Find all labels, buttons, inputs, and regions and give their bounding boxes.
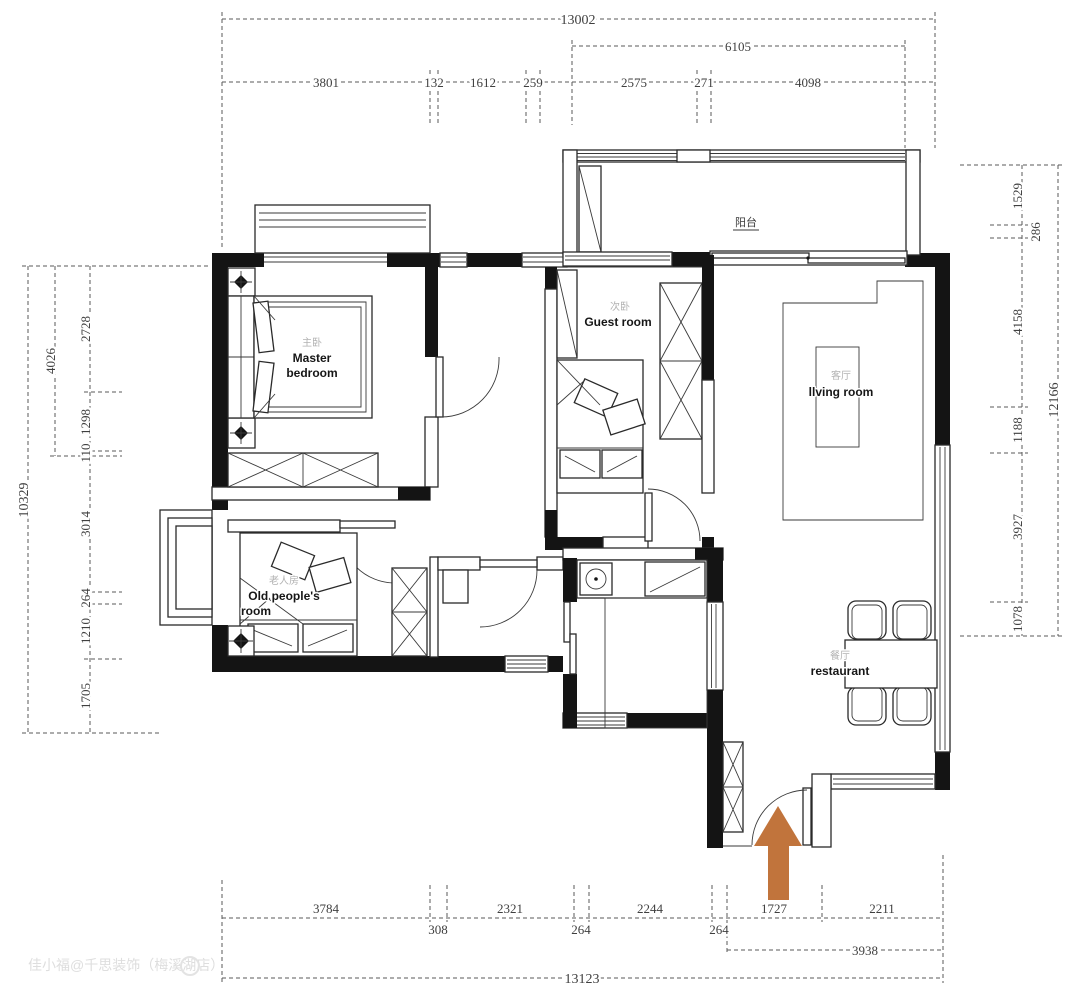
dim-bottom-seg: 264 bbox=[571, 922, 591, 937]
nightstand-icon bbox=[228, 418, 255, 448]
hall-cabinet bbox=[392, 568, 427, 656]
dim-right-seg: 1188 bbox=[1010, 417, 1025, 443]
bathroom bbox=[430, 557, 563, 657]
restaurant: 餐厅 restaurant bbox=[811, 601, 937, 725]
living-room-label-en: llving room bbox=[809, 385, 874, 399]
dim-bottom-seg: 2211 bbox=[869, 901, 895, 916]
drying-panel-icon bbox=[579, 166, 601, 252]
window-entrance bbox=[831, 774, 935, 789]
wardrobe-master bbox=[228, 453, 378, 487]
dim-bottom-overall: 13123 bbox=[565, 972, 600, 987]
master-bedroom-label-zh: 主卧 bbox=[302, 336, 322, 349]
kitchen-counter bbox=[577, 560, 707, 728]
window-restaurant bbox=[935, 445, 950, 752]
dim-right-seg: 4158 bbox=[1010, 309, 1025, 335]
dim-right-overall: 12166 bbox=[1047, 383, 1062, 418]
dim-left-sub: 4026 bbox=[43, 348, 58, 375]
dim-left-overall: 10329 bbox=[17, 483, 32, 518]
shower-partition bbox=[443, 570, 468, 603]
guest-room-label-en: Guest room bbox=[584, 315, 651, 329]
dim-top-seg: 1612 bbox=[470, 75, 496, 90]
dim-bottom-seg: 2244 bbox=[637, 901, 664, 916]
floor-plan-drawing: 13002 6105 3801 132 1612 259 2575 271 40… bbox=[0, 0, 1080, 998]
entrance bbox=[723, 742, 831, 900]
dim-top-seg: 3801 bbox=[313, 75, 339, 90]
dim-bottom-seg: 2321 bbox=[497, 901, 523, 916]
balcony-label: 阳台 bbox=[733, 215, 759, 230]
bed-guest bbox=[557, 360, 645, 493]
dim-bottom-seg: 264 bbox=[709, 922, 729, 937]
door-bathroom bbox=[480, 560, 537, 627]
door-guest-room bbox=[645, 489, 700, 541]
sliding-door-kitchen bbox=[564, 602, 576, 674]
sofa-tv-arrangement bbox=[783, 281, 923, 520]
old-people-room-label-en: room bbox=[241, 604, 271, 618]
kitchen bbox=[563, 548, 723, 728]
dim-right-seg: 286 bbox=[1028, 222, 1043, 242]
dim-top-seg: 271 bbox=[694, 75, 714, 90]
entrance-arrow-icon bbox=[754, 806, 802, 900]
dim-top-seg: 2575 bbox=[621, 75, 647, 90]
dim-left-seg: 3014 bbox=[78, 511, 93, 538]
window-bathroom bbox=[505, 656, 548, 672]
bay-window-old-room bbox=[160, 510, 212, 625]
nightstand-icon bbox=[228, 626, 254, 656]
dim-bottom-seg: 1727 bbox=[761, 901, 788, 916]
floor-plan-page: 13002 6105 3801 132 1612 259 2575 271 40… bbox=[0, 0, 1080, 998]
master-bedroom-label-en: bedroom bbox=[286, 366, 337, 380]
dimension-chain-left: 10329 4026 2728 1298 110 3014 264 1210 1… bbox=[17, 266, 208, 733]
watermark: 佳小福@千思装饰（梅溪湖店） bbox=[28, 957, 224, 975]
dimension-chain-right: 1529 286 4158 1188 3927 1078 12166 bbox=[960, 165, 1064, 636]
dimension-chain-bottom: 3784 308 2321 264 2244 264 1727 2211 393… bbox=[222, 855, 943, 987]
dim-top-seg: 132 bbox=[424, 75, 444, 90]
sliding-door-balcony bbox=[710, 251, 907, 265]
dim-bottom-seg: 308 bbox=[428, 922, 448, 937]
dim-left-seg: 2728 bbox=[78, 316, 93, 342]
balcony: 阳台 bbox=[563, 150, 920, 266]
dim-bottom-seg: 3784 bbox=[313, 901, 340, 916]
dining-set bbox=[845, 601, 937, 725]
guest-room-label-zh: 次卧 bbox=[610, 300, 630, 313]
restaurant-label-en: restaurant bbox=[811, 664, 870, 678]
dim-top-sub: 6105 bbox=[725, 39, 751, 54]
closet-panel-icon bbox=[557, 270, 577, 358]
living-room: 客厅 llving room bbox=[783, 281, 923, 520]
dim-left-seg: 1210 bbox=[78, 618, 93, 644]
wardrobe-guest bbox=[660, 283, 702, 439]
living-room-label-zh: 客厅 bbox=[831, 369, 851, 382]
old-people-room-label-zh: 老人房 bbox=[269, 574, 299, 587]
old-people-room-label-en: Old people's bbox=[248, 589, 320, 603]
dim-right-seg: 1078 bbox=[1010, 606, 1025, 632]
dim-left-seg: 1705 bbox=[78, 683, 93, 709]
dim-right-seg: 3927 bbox=[1010, 514, 1025, 541]
dim-left-seg: 110 bbox=[78, 443, 93, 462]
master-bedroom-label-en: Master bbox=[293, 351, 332, 365]
balcony-label-zh: 阳台 bbox=[735, 215, 757, 229]
dim-left-seg: 1298 bbox=[78, 409, 93, 435]
restaurant-label-zh: 餐厅 bbox=[830, 649, 850, 662]
guest-room: 次卧 Guest room bbox=[545, 255, 714, 550]
dim-top-seg: 259 bbox=[523, 75, 543, 90]
dim-top-overall: 13002 bbox=[561, 13, 596, 28]
dim-left-seg: 264 bbox=[78, 588, 93, 608]
master-bedroom: 主卧 Master bedroom bbox=[212, 267, 499, 500]
shoe-cabinet bbox=[723, 742, 743, 832]
door-master-bedroom bbox=[436, 357, 499, 417]
dim-top-seg: 4098 bbox=[795, 75, 821, 90]
dim-right-seg: 1529 bbox=[1010, 183, 1025, 209]
bay-window-master bbox=[255, 205, 430, 262]
old-people-room: 老人房 Old people's room bbox=[228, 520, 395, 656]
dim-bottom-sub: 3938 bbox=[852, 943, 878, 958]
nightstand-icon bbox=[228, 268, 255, 296]
